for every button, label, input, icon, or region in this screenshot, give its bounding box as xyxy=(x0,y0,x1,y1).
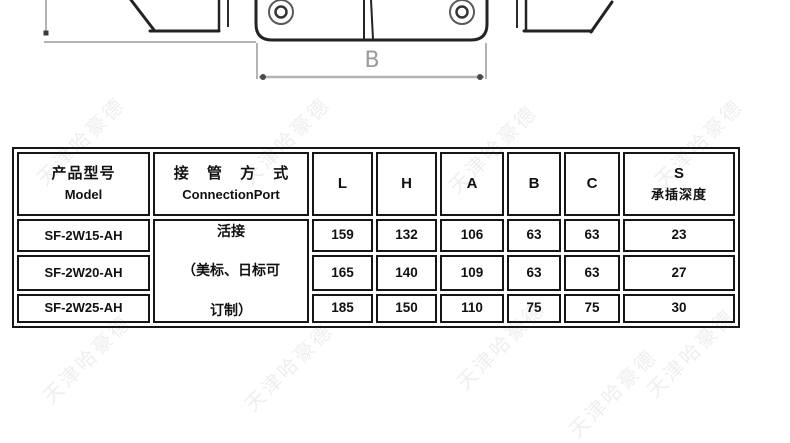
cell-b-1: 63 xyxy=(507,255,561,291)
watermark-text: 天津哈豪德 xyxy=(561,341,663,443)
table-row: SF-2W15-AH 活接 （美标、日标可 订制） 159 132 106 63… xyxy=(17,219,735,252)
bolt-hole-right-inner xyxy=(457,7,468,18)
spec-table: 产品型号 Model 接 管 方 式 ConnectionPort L H A … xyxy=(12,147,740,328)
cell-h-1: 140 xyxy=(376,255,437,291)
left-dimension-arrow xyxy=(44,31,49,36)
cell-l-2: 185 xyxy=(312,294,373,323)
header-col-h: H xyxy=(376,152,437,216)
header-connection-cn: 接 管 方 式 xyxy=(157,165,305,184)
dim-b-label: B xyxy=(364,48,379,73)
cell-a-2: 110 xyxy=(440,294,504,323)
header-model-en: Model xyxy=(21,187,146,203)
cell-s-1: 27 xyxy=(623,255,735,291)
bolt-hole-left-inner xyxy=(276,7,287,18)
header-model-cn: 产品型号 xyxy=(21,165,146,184)
cell-b-0: 63 xyxy=(507,219,561,252)
header-col-s-letter: S xyxy=(627,165,731,184)
cell-b-2: 75 xyxy=(507,294,561,323)
header-col-a: A xyxy=(440,152,504,216)
header-connection-en: ConnectionPort xyxy=(157,187,305,203)
header-connection: 接 管 方 式 ConnectionPort xyxy=(153,152,309,216)
cell-l-1: 165 xyxy=(312,255,373,291)
cell-c-0: 63 xyxy=(564,219,620,252)
watermark-text: 天津哈豪德 xyxy=(237,315,339,417)
technical-drawing: B xyxy=(0,0,790,140)
header-model: 产品型号 Model xyxy=(17,152,150,216)
cell-model-1: SF-2W20-AH xyxy=(17,255,150,291)
plate-seam-line-right xyxy=(371,0,373,39)
header-row: 产品型号 Model 接 管 方 式 ConnectionPort L H A … xyxy=(17,152,735,216)
bolt-hole-right-outer xyxy=(450,0,474,24)
table-row: SF-2W20-AH 165 140 109 63 63 27 xyxy=(17,255,735,291)
cell-s-2: 30 xyxy=(623,294,735,323)
datasheet-page: B 产品型号 Model 接 管 方 式 ConnectionPort L H … xyxy=(0,0,790,418)
dim-b-arrow-right xyxy=(477,74,483,80)
bolt-hole-left-outer xyxy=(269,0,293,24)
cell-s-0: 23 xyxy=(623,219,735,252)
cell-model-2: SF-2W25-AH xyxy=(17,294,150,323)
header-col-c: C xyxy=(564,152,620,216)
cell-h-2: 150 xyxy=(376,294,437,323)
connection-note-line-1: 活接 xyxy=(157,223,305,241)
connection-note-line-3: 订制） xyxy=(157,302,305,320)
cell-a-1: 109 xyxy=(440,255,504,291)
left-union-nut-chamfer xyxy=(131,0,154,30)
dim-b-arrow-left xyxy=(260,74,266,80)
header-col-b: B xyxy=(507,152,561,216)
cell-a-0: 106 xyxy=(440,219,504,252)
right-union-nut-chamfer xyxy=(591,2,612,32)
table-row: SF-2W25-AH 185 150 110 75 75 30 xyxy=(17,294,735,323)
drawing-svg: B xyxy=(0,0,790,140)
cell-model-0: SF-2W15-AH xyxy=(17,219,150,252)
cell-connection-note: 活接 （美标、日标可 订制） xyxy=(153,219,309,323)
header-col-s: S 承插深度 xyxy=(623,152,735,216)
cell-c-2: 75 xyxy=(564,294,620,323)
cell-h-0: 132 xyxy=(376,219,437,252)
header-col-s-sub: 承插深度 xyxy=(627,187,731,203)
header-col-l: L xyxy=(312,152,373,216)
cell-c-1: 63 xyxy=(564,255,620,291)
cell-l-0: 159 xyxy=(312,219,373,252)
connection-note-line-2: （美标、日标可 xyxy=(157,262,305,280)
